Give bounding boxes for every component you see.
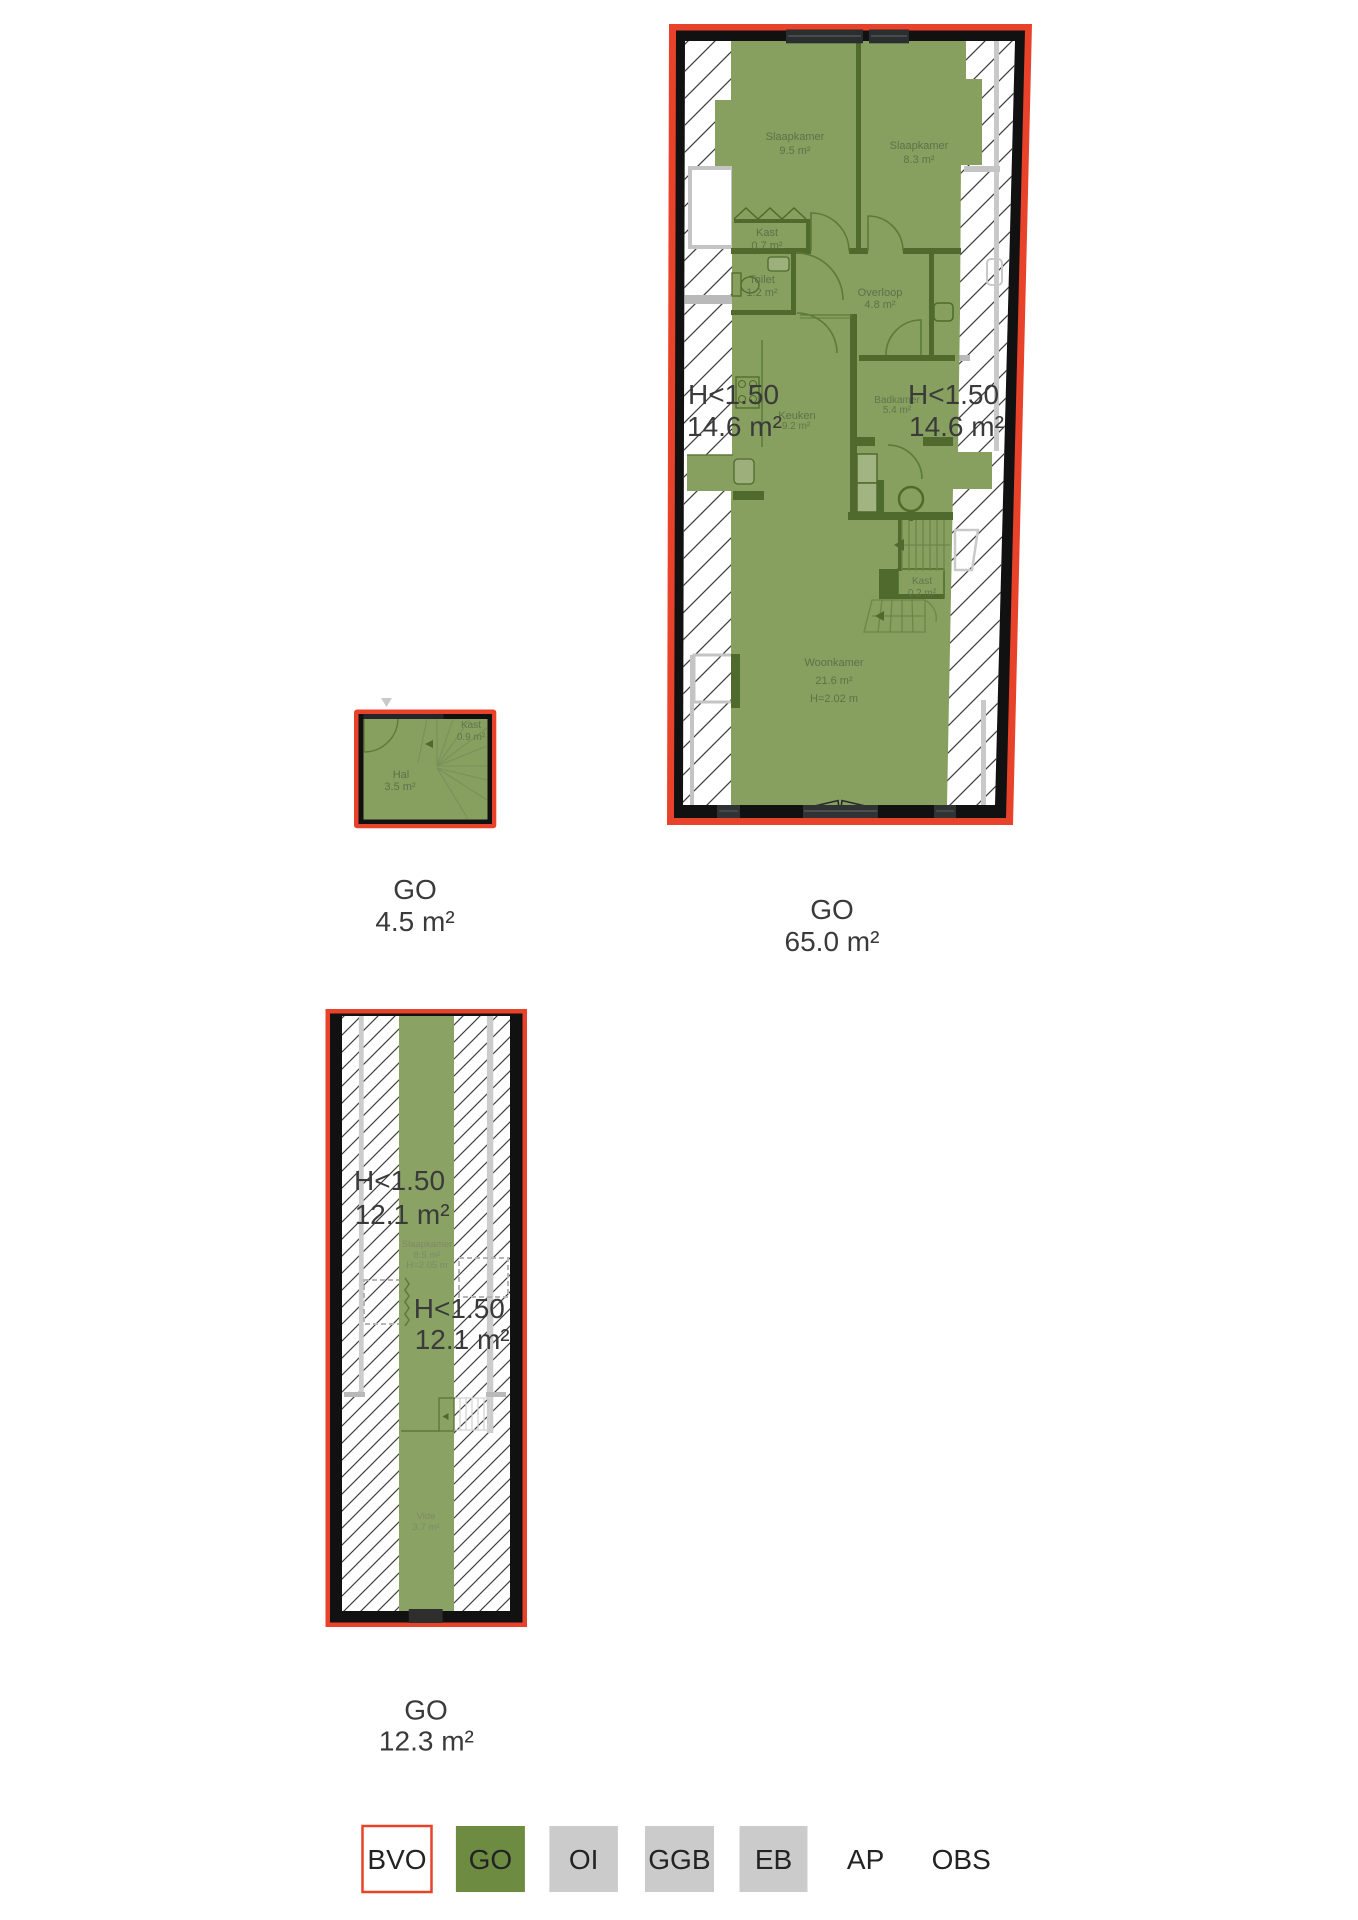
svg-text:GO: GO bbox=[393, 874, 437, 905]
svg-text:EB: EB bbox=[755, 1844, 792, 1875]
svg-text:Slaapkamer: Slaapkamer bbox=[890, 140, 949, 152]
svg-text:H<1.50: H<1.50 bbox=[908, 379, 999, 410]
svg-text:21.6 m²: 21.6 m² bbox=[815, 675, 853, 687]
svg-text:4.5 m²: 4.5 m² bbox=[375, 906, 454, 937]
svg-text:H=2.05 m: H=2.05 m bbox=[406, 1260, 448, 1271]
svg-text:12.3 m²: 12.3 m² bbox=[379, 1725, 474, 1756]
svg-text:Slaapkamer: Slaapkamer bbox=[402, 1239, 453, 1250]
svg-text:Kast: Kast bbox=[461, 720, 481, 731]
svg-text:Toilet: Toilet bbox=[749, 274, 775, 286]
svg-text:GO: GO bbox=[404, 1695, 448, 1726]
svg-text:Kast: Kast bbox=[912, 576, 932, 587]
svg-text:Woonkamer: Woonkamer bbox=[804, 657, 863, 669]
svg-text:9.5 m²: 9.5 m² bbox=[779, 145, 811, 157]
svg-text:0.2 m²: 0.2 m² bbox=[908, 588, 937, 599]
svg-text:65.0 m²: 65.0 m² bbox=[785, 926, 880, 957]
svg-text:Slaapkamer: Slaapkamer bbox=[766, 131, 825, 143]
svg-text:8.3 m²: 8.3 m² bbox=[903, 154, 935, 166]
svg-text:0.9 m²: 0.9 m² bbox=[457, 732, 486, 743]
svg-text:3.7 m²: 3.7 m² bbox=[413, 1522, 440, 1533]
svg-text:GO: GO bbox=[469, 1844, 513, 1875]
svg-text:AP: AP bbox=[847, 1844, 884, 1875]
svg-text:1.2 m²: 1.2 m² bbox=[746, 287, 778, 299]
svg-text:12.1 m²: 12.1 m² bbox=[415, 1324, 510, 1355]
svg-text:GO: GO bbox=[810, 894, 854, 925]
svg-text:9.2 m²: 9.2 m² bbox=[782, 421, 811, 432]
svg-text:H<1.50: H<1.50 bbox=[414, 1293, 505, 1324]
svg-text:Kast: Kast bbox=[756, 227, 778, 239]
svg-text:OBS: OBS bbox=[932, 1844, 991, 1875]
svg-text:H<1.50: H<1.50 bbox=[354, 1165, 445, 1196]
svg-text:0.7 m²: 0.7 m² bbox=[751, 240, 783, 252]
svg-text:Overloop: Overloop bbox=[858, 287, 903, 299]
svg-text:12.1 m²: 12.1 m² bbox=[355, 1199, 450, 1230]
svg-text:14.6 m²: 14.6 m² bbox=[687, 411, 782, 442]
svg-text:Hal: Hal bbox=[393, 769, 410, 781]
svg-text:BVO: BVO bbox=[367, 1844, 426, 1875]
svg-text:3.5 m²: 3.5 m² bbox=[384, 781, 416, 793]
svg-text:H=2.02 m: H=2.02 m bbox=[810, 693, 858, 705]
svg-text:GGB: GGB bbox=[648, 1844, 710, 1875]
svg-text:H<1.50: H<1.50 bbox=[688, 379, 779, 410]
svg-text:4.8 m²: 4.8 m² bbox=[864, 299, 896, 311]
svg-text:OI: OI bbox=[569, 1844, 599, 1875]
svg-text:14.6 m²: 14.6 m² bbox=[909, 411, 1004, 442]
svg-text:Vide: Vide bbox=[417, 1511, 436, 1522]
